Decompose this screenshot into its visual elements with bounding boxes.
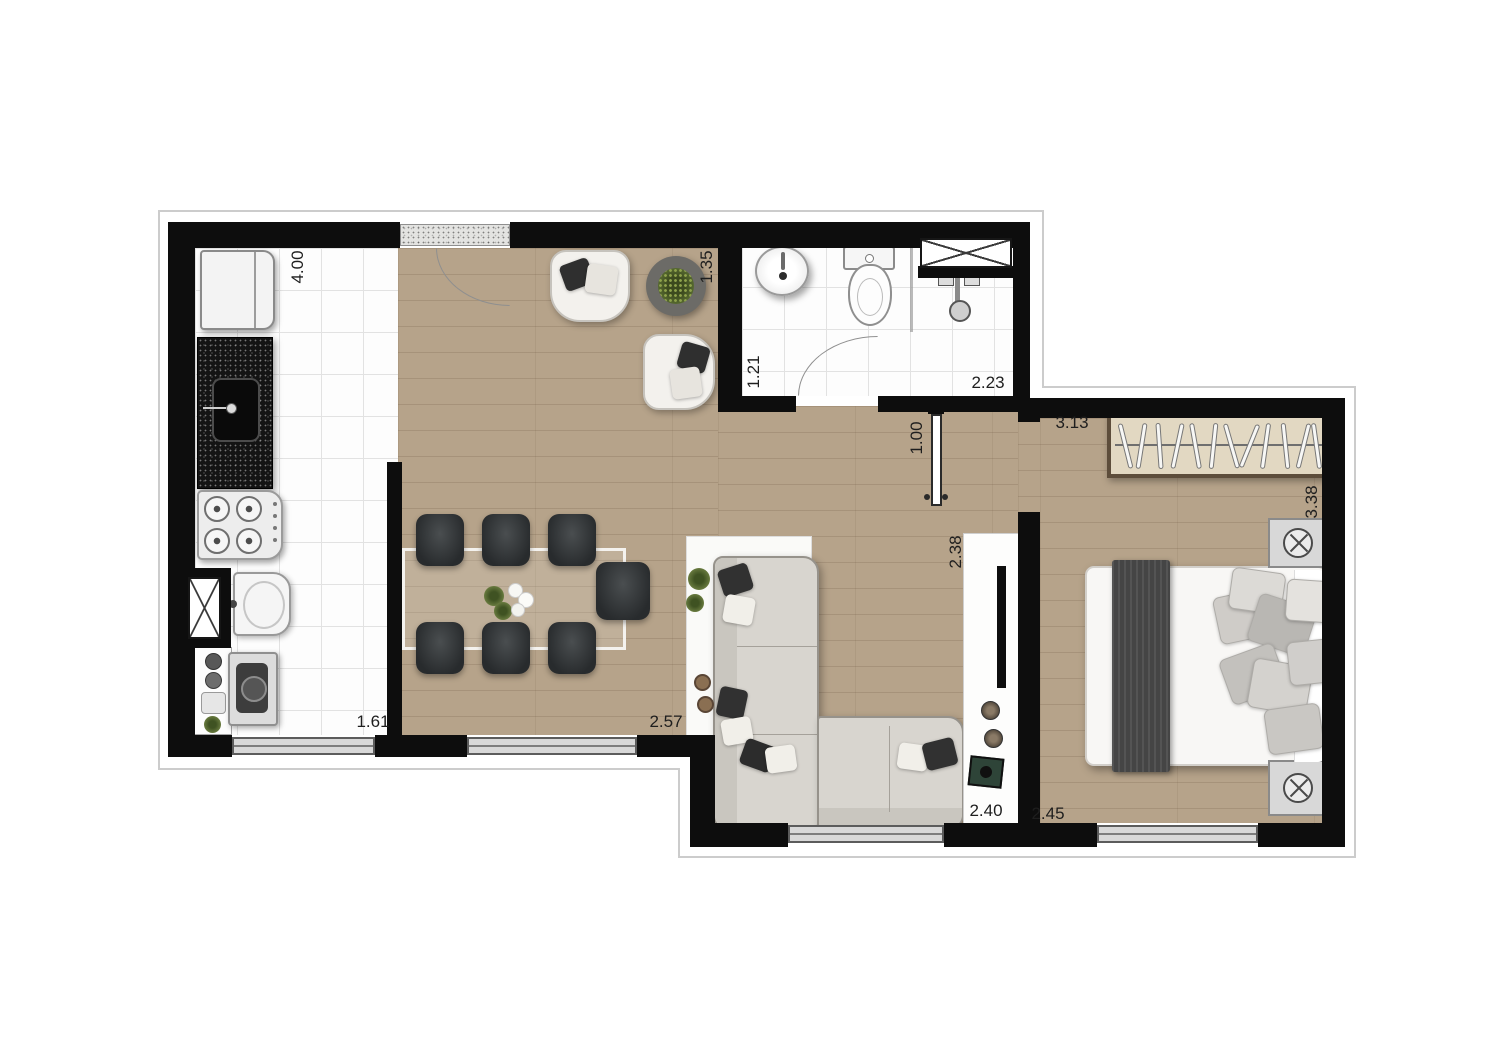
shelf-plant — [204, 716, 221, 733]
pillow — [722, 594, 756, 627]
oven-door — [236, 663, 268, 713]
dining-chair — [596, 562, 650, 620]
hanger — [1223, 423, 1240, 469]
stove-knob — [273, 502, 277, 506]
box — [201, 692, 226, 714]
dim-living-tv-side: 2.38 — [947, 529, 965, 575]
hanger — [1260, 423, 1271, 469]
nightstand — [1268, 760, 1328, 816]
bedroom-door-leaf — [931, 414, 942, 506]
shower-head — [949, 300, 971, 322]
burner — [236, 528, 262, 554]
laundry-tank — [188, 577, 221, 639]
outline — [1042, 210, 1044, 388]
tv-panel — [997, 566, 1006, 688]
dim-dining-window: 2.57 — [643, 713, 689, 731]
bedroom-window — [1097, 825, 1258, 843]
jar — [205, 672, 222, 689]
kitchen-shelf — [193, 647, 232, 735]
hanger — [1155, 423, 1163, 469]
wardrobe — [1107, 412, 1331, 478]
wall-top-left — [168, 222, 400, 248]
outline — [678, 768, 680, 858]
wall-tv — [1018, 512, 1040, 845]
outline — [678, 856, 1356, 858]
pillow — [584, 263, 619, 296]
pillow — [669, 366, 703, 400]
jar — [205, 653, 222, 670]
dim-kitchen-window: 1.61 — [350, 713, 396, 731]
burner — [204, 528, 230, 554]
stove-knob — [273, 526, 277, 530]
burner — [204, 496, 230, 522]
armchair — [643, 334, 715, 410]
cup — [697, 696, 714, 713]
burner — [236, 496, 262, 522]
leaves — [494, 602, 512, 620]
dining-chair — [548, 622, 596, 674]
wall-door-hinge-stub — [928, 396, 944, 414]
bed-pillow — [1263, 702, 1325, 755]
dining-window — [467, 737, 637, 755]
oven — [228, 652, 278, 726]
basin-drain — [779, 272, 787, 280]
stove-knob — [273, 538, 277, 542]
basin-faucet — [781, 252, 785, 270]
armchair — [550, 250, 630, 322]
toilet-bowl — [848, 264, 892, 326]
wall-left — [168, 222, 195, 568]
outline — [158, 768, 680, 770]
floor-plant — [688, 568, 710, 590]
wall-bottom-kitchen-a — [168, 735, 232, 757]
wall-bottom-living-a — [690, 823, 788, 847]
washbasin — [755, 246, 809, 296]
table-lamp-icon — [1283, 773, 1313, 803]
toilet-bowl-inner — [857, 278, 883, 316]
outline — [1354, 386, 1356, 858]
hanger — [1170, 423, 1184, 469]
dim-kitchen-side: 4.00 — [289, 244, 307, 290]
wall-bedroom-bottom-b — [1258, 823, 1345, 847]
wall-bedroom-bottom-a — [1040, 823, 1097, 847]
dining-chair — [416, 514, 464, 566]
magazine — [968, 755, 1005, 788]
hanger — [1189, 423, 1202, 469]
wardrobe-rod — [1115, 444, 1323, 446]
potted-plant — [658, 268, 694, 304]
dim-bedroom-width: 3.13 — [1049, 414, 1095, 432]
dim-bedroom-depth: 3.38 — [1303, 479, 1321, 525]
cooktop — [197, 490, 283, 560]
hanger — [1135, 423, 1147, 469]
floor-plant — [686, 594, 704, 612]
kitchen-faucet-knob — [226, 403, 237, 414]
floor-plan: 4.00 1.35 1.21 2.23 1.00 3.13 3.38 2.38 … — [0, 0, 1500, 1050]
hanger — [1296, 423, 1312, 469]
cup — [694, 674, 711, 691]
toilet — [843, 246, 893, 326]
dining-chair — [482, 514, 530, 566]
shower-glass-partition — [910, 248, 913, 332]
wall-bedroom-right — [1322, 398, 1345, 847]
door-handle — [924, 494, 930, 500]
flower-centerpiece — [484, 578, 540, 622]
dim-hall-width: 1.00 — [908, 415, 926, 461]
stove-knob — [273, 514, 277, 518]
wall-bath-left — [718, 245, 742, 406]
magazine-art — [979, 765, 992, 778]
nightstand — [1268, 518, 1328, 568]
hanger — [1311, 423, 1322, 469]
outline — [158, 210, 1044, 212]
table-lamp-icon — [1283, 528, 1313, 558]
bed-runner — [1112, 560, 1170, 772]
wall-bath-bottom-b — [878, 396, 1030, 412]
flush-button — [865, 254, 874, 263]
white-flower — [511, 603, 525, 617]
doorway-floor — [1018, 418, 1040, 512]
speaker — [984, 729, 1003, 748]
door-handle — [942, 494, 948, 500]
dim-living-window: 2.40 — [963, 802, 1009, 820]
dim-bedroom-window: 2.45 — [1025, 805, 1071, 823]
speaker — [981, 701, 1000, 720]
kitchen-window — [232, 737, 375, 755]
dining-chair — [416, 622, 464, 674]
refrigerator — [200, 250, 275, 330]
dining-chair — [482, 622, 530, 674]
living-window — [788, 825, 944, 843]
hanger — [1239, 424, 1261, 469]
washer-drum — [243, 581, 285, 629]
washing-machine — [233, 572, 291, 636]
dim-bathroom-side: 1.21 — [745, 349, 763, 395]
pillow — [764, 744, 797, 774]
sofa-seam — [737, 646, 817, 647]
dining-chair — [548, 514, 596, 566]
entry-threshold — [400, 224, 510, 246]
wall-bath-right — [1013, 222, 1030, 406]
dim-bathroom-width: 2.23 — [965, 374, 1011, 392]
outline — [1042, 386, 1356, 388]
sofa-section-horizontal — [817, 716, 964, 830]
hanger — [1209, 423, 1219, 469]
wall-shaft — [920, 238, 1012, 268]
dim-living-entry-side: 1.35 — [698, 244, 716, 290]
outline — [158, 210, 160, 770]
hanger — [1118, 423, 1134, 469]
wall-bath-bottom-a — [718, 396, 796, 412]
sofa-seam — [889, 726, 890, 812]
oven-glass — [241, 676, 267, 702]
hanger — [1281, 423, 1291, 469]
